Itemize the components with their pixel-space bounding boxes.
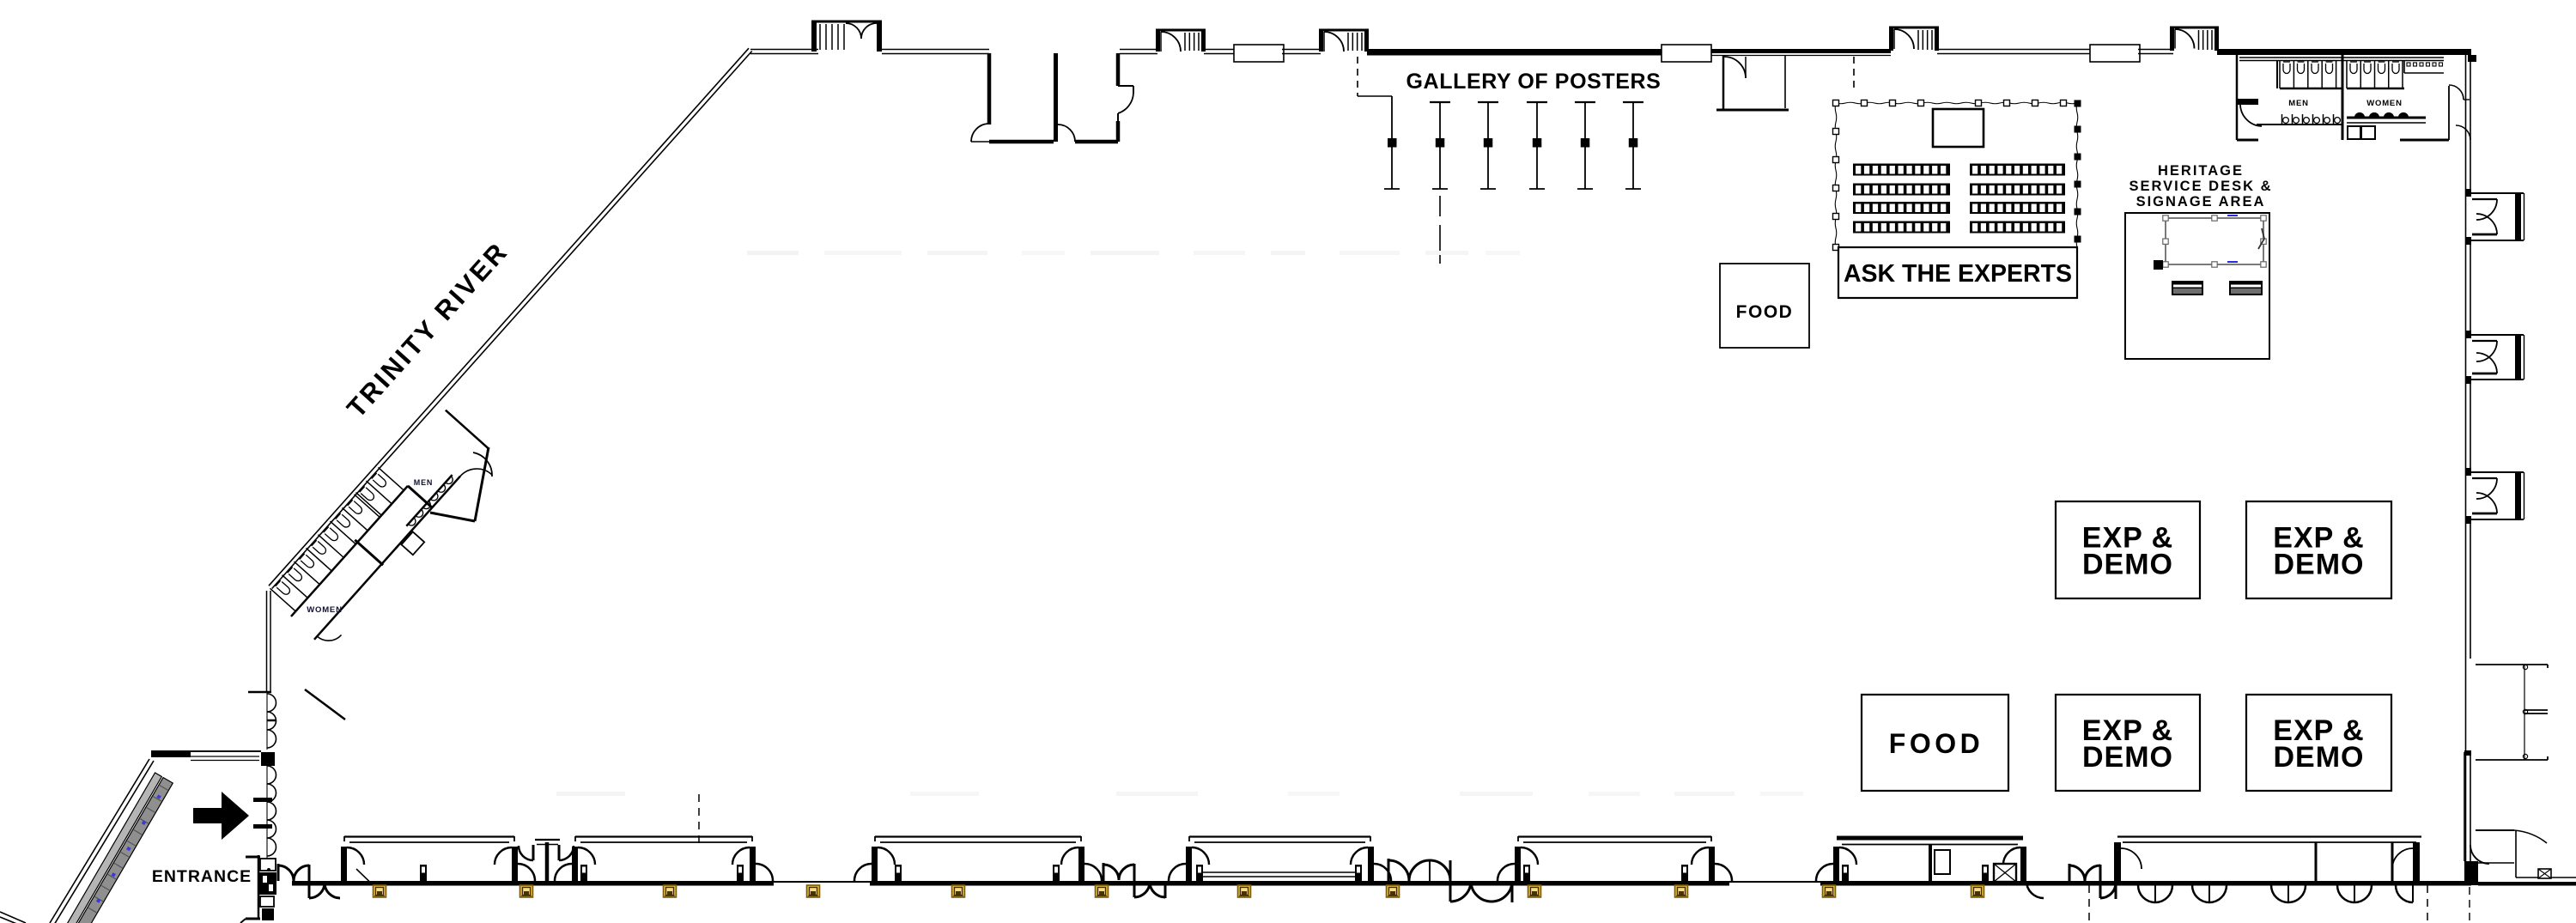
svg-text:ASK THE EXPERTS: ASK THE EXPERTS <box>1844 260 2072 288</box>
svg-text:DEMO: DEMO <box>2082 549 2173 581</box>
svg-text:DEMO: DEMO <box>2274 549 2365 581</box>
svg-text:ENTRANCE: ENTRANCE <box>152 867 252 886</box>
svg-text:SERVICE DESK &: SERVICE DESK & <box>2129 179 2272 194</box>
svg-text:FOOD: FOOD <box>1889 728 1984 759</box>
svg-text:SIGNAGE AREA: SIGNAGE AREA <box>2136 194 2266 209</box>
svg-text:DEMO: DEMO <box>2274 741 2365 774</box>
svg-text:WOMEN: WOMEN <box>307 605 342 615</box>
svg-text:MEN: MEN <box>2288 99 2309 108</box>
svg-text:FOOD: FOOD <box>1736 302 1794 322</box>
svg-text:MEN: MEN <box>414 478 433 487</box>
svg-text:GALLERY OF POSTERS: GALLERY OF POSTERS <box>1406 70 1662 94</box>
svg-text:WOMEN: WOMEN <box>2366 99 2402 108</box>
svg-text:DEMO: DEMO <box>2082 741 2173 774</box>
svg-text:HERITAGE: HERITAGE <box>2158 163 2244 179</box>
